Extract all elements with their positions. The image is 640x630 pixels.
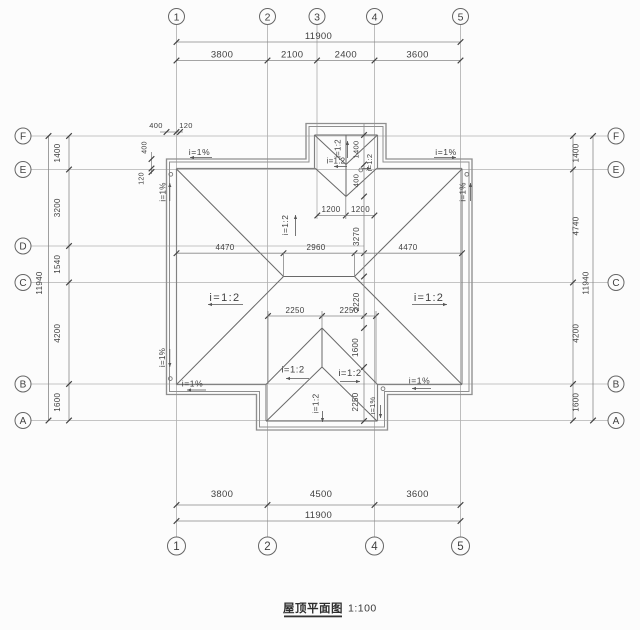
svg-text:4200: 4200 — [53, 324, 62, 343]
svg-text:4740: 4740 — [572, 216, 581, 235]
svg-text:屋顶平面图: 屋顶平面图 — [283, 601, 343, 615]
svg-text:3270: 3270 — [352, 227, 361, 246]
svg-text:i=1:2: i=1:2 — [209, 292, 240, 304]
svg-text:i=1:2: i=1:2 — [334, 139, 343, 158]
svg-text:2400: 2400 — [335, 50, 357, 61]
svg-text:i=1:2: i=1:2 — [281, 365, 304, 376]
svg-text:3200: 3200 — [53, 198, 62, 217]
svg-text:11900: 11900 — [305, 31, 332, 42]
svg-text:E: E — [20, 165, 27, 176]
svg-text:2250: 2250 — [351, 392, 360, 411]
svg-text:i=1%: i=1% — [182, 379, 204, 389]
svg-text:B: B — [20, 380, 27, 391]
svg-text:1200: 1200 — [322, 205, 341, 214]
svg-text:A: A — [613, 416, 620, 427]
svg-text:3600: 3600 — [406, 50, 428, 61]
svg-text:2220: 2220 — [352, 292, 361, 311]
svg-text:2: 2 — [264, 541, 270, 553]
svg-text:i=1%: i=1% — [435, 147, 457, 157]
svg-text:B: B — [613, 380, 620, 391]
svg-text:4470: 4470 — [216, 243, 235, 252]
svg-text:i=1%: i=1% — [459, 182, 468, 201]
svg-text:i=1%: i=1% — [159, 182, 168, 201]
svg-text:i=1%: i=1% — [189, 147, 211, 157]
svg-text:1540: 1540 — [53, 255, 62, 274]
svg-text:i=1:2: i=1:2 — [414, 292, 444, 304]
svg-text:4200: 4200 — [572, 324, 581, 343]
svg-text:1:100: 1:100 — [348, 603, 377, 615]
svg-text:2250: 2250 — [286, 306, 305, 315]
svg-text:5: 5 — [458, 11, 464, 23]
svg-text:F: F — [20, 132, 26, 143]
svg-text:4500: 4500 — [310, 489, 332, 500]
svg-text:1400: 1400 — [572, 143, 581, 162]
svg-text:400: 400 — [142, 141, 149, 154]
svg-text:D: D — [19, 242, 26, 253]
svg-text:i=1:2: i=1:2 — [311, 393, 321, 413]
svg-text:i=1:2: i=1:2 — [280, 215, 290, 236]
svg-text:3800: 3800 — [211, 489, 233, 500]
svg-text:2960: 2960 — [307, 243, 326, 252]
svg-text:E: E — [613, 165, 620, 176]
svg-text:C: C — [612, 278, 619, 289]
svg-text:i=1%: i=1% — [368, 397, 377, 415]
svg-text:1400: 1400 — [352, 141, 361, 159]
svg-text:F: F — [613, 132, 619, 143]
svg-text:1: 1 — [174, 11, 180, 23]
svg-text:1600: 1600 — [351, 338, 360, 357]
svg-text:1: 1 — [173, 541, 179, 553]
svg-text:1600: 1600 — [53, 393, 62, 412]
svg-text:11940: 11940 — [35, 271, 44, 294]
svg-text:2100: 2100 — [281, 50, 303, 61]
svg-text:2: 2 — [265, 11, 271, 23]
svg-text:4: 4 — [371, 541, 378, 553]
svg-text:i=1:2: i=1:2 — [338, 368, 361, 379]
svg-text:4470: 4470 — [399, 243, 418, 252]
svg-text:C: C — [19, 278, 26, 289]
svg-text:i=1%: i=1% — [158, 348, 167, 367]
svg-text:A: A — [20, 416, 27, 427]
svg-text:i=1%: i=1% — [409, 376, 431, 386]
svg-text:120: 120 — [179, 121, 192, 130]
svg-text:11900: 11900 — [305, 510, 332, 521]
svg-text:3: 3 — [314, 11, 320, 23]
svg-text:400: 400 — [149, 121, 162, 130]
svg-text:3800: 3800 — [211, 50, 233, 61]
svg-text:1400: 1400 — [53, 143, 62, 162]
svg-text:11940: 11940 — [582, 271, 591, 294]
svg-text:120: 120 — [139, 172, 146, 185]
svg-text:1600: 1600 — [572, 393, 581, 412]
svg-text:400: 400 — [352, 174, 361, 187]
svg-text:1200: 1200 — [351, 205, 370, 214]
svg-text:5: 5 — [457, 541, 463, 553]
svg-text:i=1:2: i=1:2 — [327, 157, 346, 166]
svg-text:3600: 3600 — [406, 489, 428, 500]
svg-text:4: 4 — [372, 11, 378, 23]
